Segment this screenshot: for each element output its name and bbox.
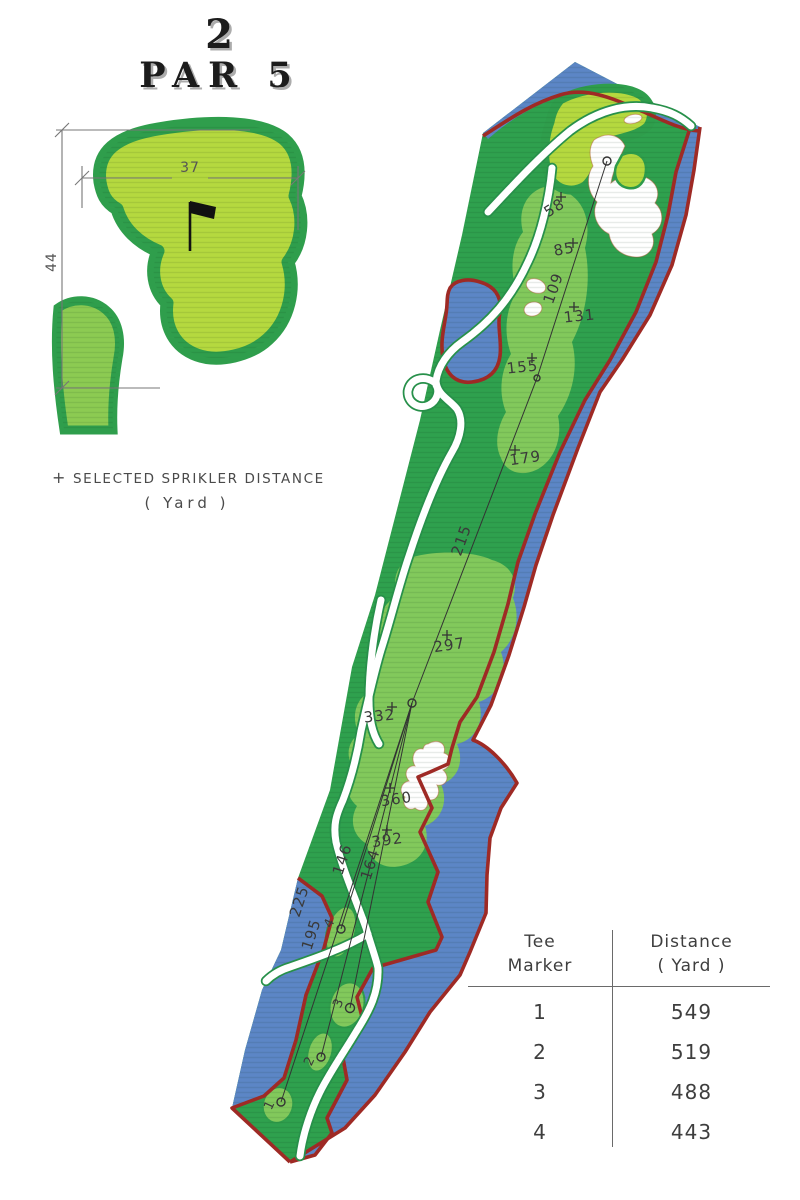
sprinkler-distance-label: 131 bbox=[563, 305, 596, 326]
table-header-tee: Tee Marker bbox=[468, 930, 613, 987]
table-row-distance: 519 bbox=[613, 1027, 770, 1067]
legend-text: SELECTED SPRIKLER DISTANCE bbox=[73, 471, 325, 487]
legend-text-row: +SELECTED SPRIKLER DISTANCE bbox=[52, 468, 322, 487]
golf-hole-sheet: 37 44 bbox=[0, 0, 800, 1200]
table-row-tee: 3 bbox=[468, 1067, 613, 1107]
sprinkler-distance-label: 155 bbox=[506, 356, 539, 377]
par-label: PAR 5 bbox=[95, 56, 345, 96]
green-width-label: 37 bbox=[180, 160, 200, 176]
green-detail-inset: 37 44 bbox=[40, 110, 330, 440]
table-header-distance-line1: Distance bbox=[613, 930, 770, 954]
table-header-distance: Distance ( Yard ) bbox=[613, 930, 770, 987]
table-row-tee: 4 bbox=[468, 1107, 613, 1147]
legend: +SELECTED SPRIKLER DISTANCE ( Yard ) bbox=[52, 468, 322, 512]
hole-number: 2 bbox=[95, 14, 345, 56]
legend-unit: ( Yard ) bbox=[52, 494, 322, 512]
table-header-tee-line1: Tee bbox=[468, 930, 612, 954]
plus-icon: + bbox=[52, 468, 67, 487]
sprinkler-distance-label: 332 bbox=[363, 705, 396, 726]
table-row-tee: 2 bbox=[468, 1027, 613, 1067]
table-row-distance: 549 bbox=[613, 987, 770, 1027]
table-header-distance-line2: ( Yard ) bbox=[613, 954, 770, 978]
tee-distance-table: Tee Marker Distance ( Yard ) 1 549 2 519… bbox=[468, 930, 770, 1147]
hole-title: 2 PAR 5 bbox=[95, 14, 345, 96]
table-row-distance: 443 bbox=[613, 1107, 770, 1147]
table-header-tee-line2: Marker bbox=[468, 954, 612, 978]
green-depth-label: 44 bbox=[44, 252, 60, 272]
table-row-tee: 1 bbox=[468, 987, 613, 1027]
sprinkler-distance-label: 85 bbox=[552, 238, 576, 259]
table-row-distance: 488 bbox=[613, 1067, 770, 1107]
